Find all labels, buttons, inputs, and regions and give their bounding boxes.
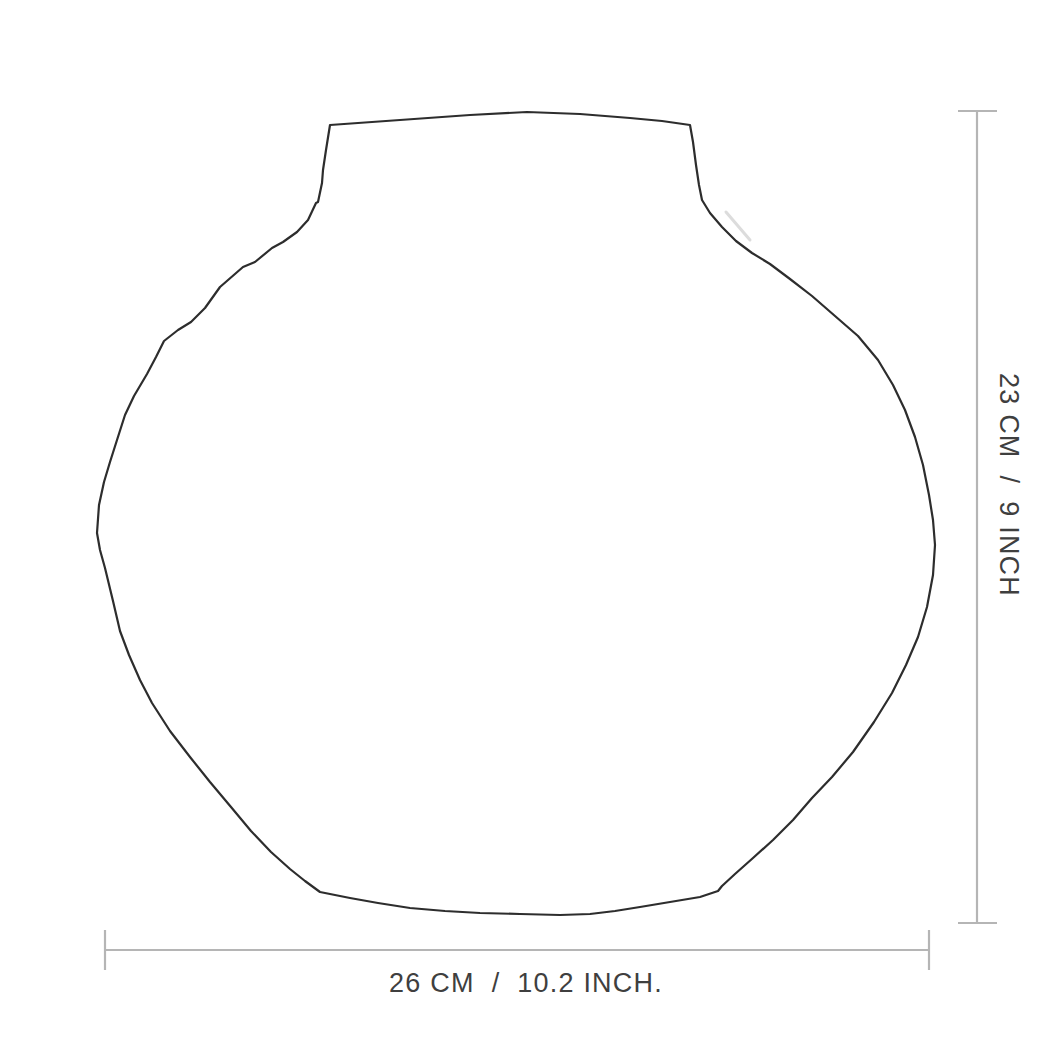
horizontal-dimension-label: 26 CM / 10.2 INCH. bbox=[389, 968, 663, 999]
horizontal-dimension-cm: 26 CM bbox=[389, 968, 475, 999]
horizontal-dimension-line bbox=[105, 930, 929, 970]
diagram-canvas bbox=[0, 0, 1050, 1050]
vertical-dimension-cm: 23 CM bbox=[993, 373, 1024, 459]
vertical-dimension-label: 23 CM / 9 INCH bbox=[993, 373, 1024, 597]
vertical-dimension-line bbox=[958, 111, 997, 923]
horizontal-dimension-inch: 10.2 INCH. bbox=[517, 968, 663, 999]
vase-outline bbox=[97, 112, 935, 915]
horizontal-dimension-separator: / bbox=[492, 968, 501, 999]
dimension-diagram: 23 CM / 9 INCH 26 CM / 10.2 INCH. bbox=[0, 0, 1050, 1050]
vertical-dimension-separator: / bbox=[993, 476, 1024, 485]
vertical-dimension-inch: 9 INCH bbox=[993, 501, 1024, 597]
